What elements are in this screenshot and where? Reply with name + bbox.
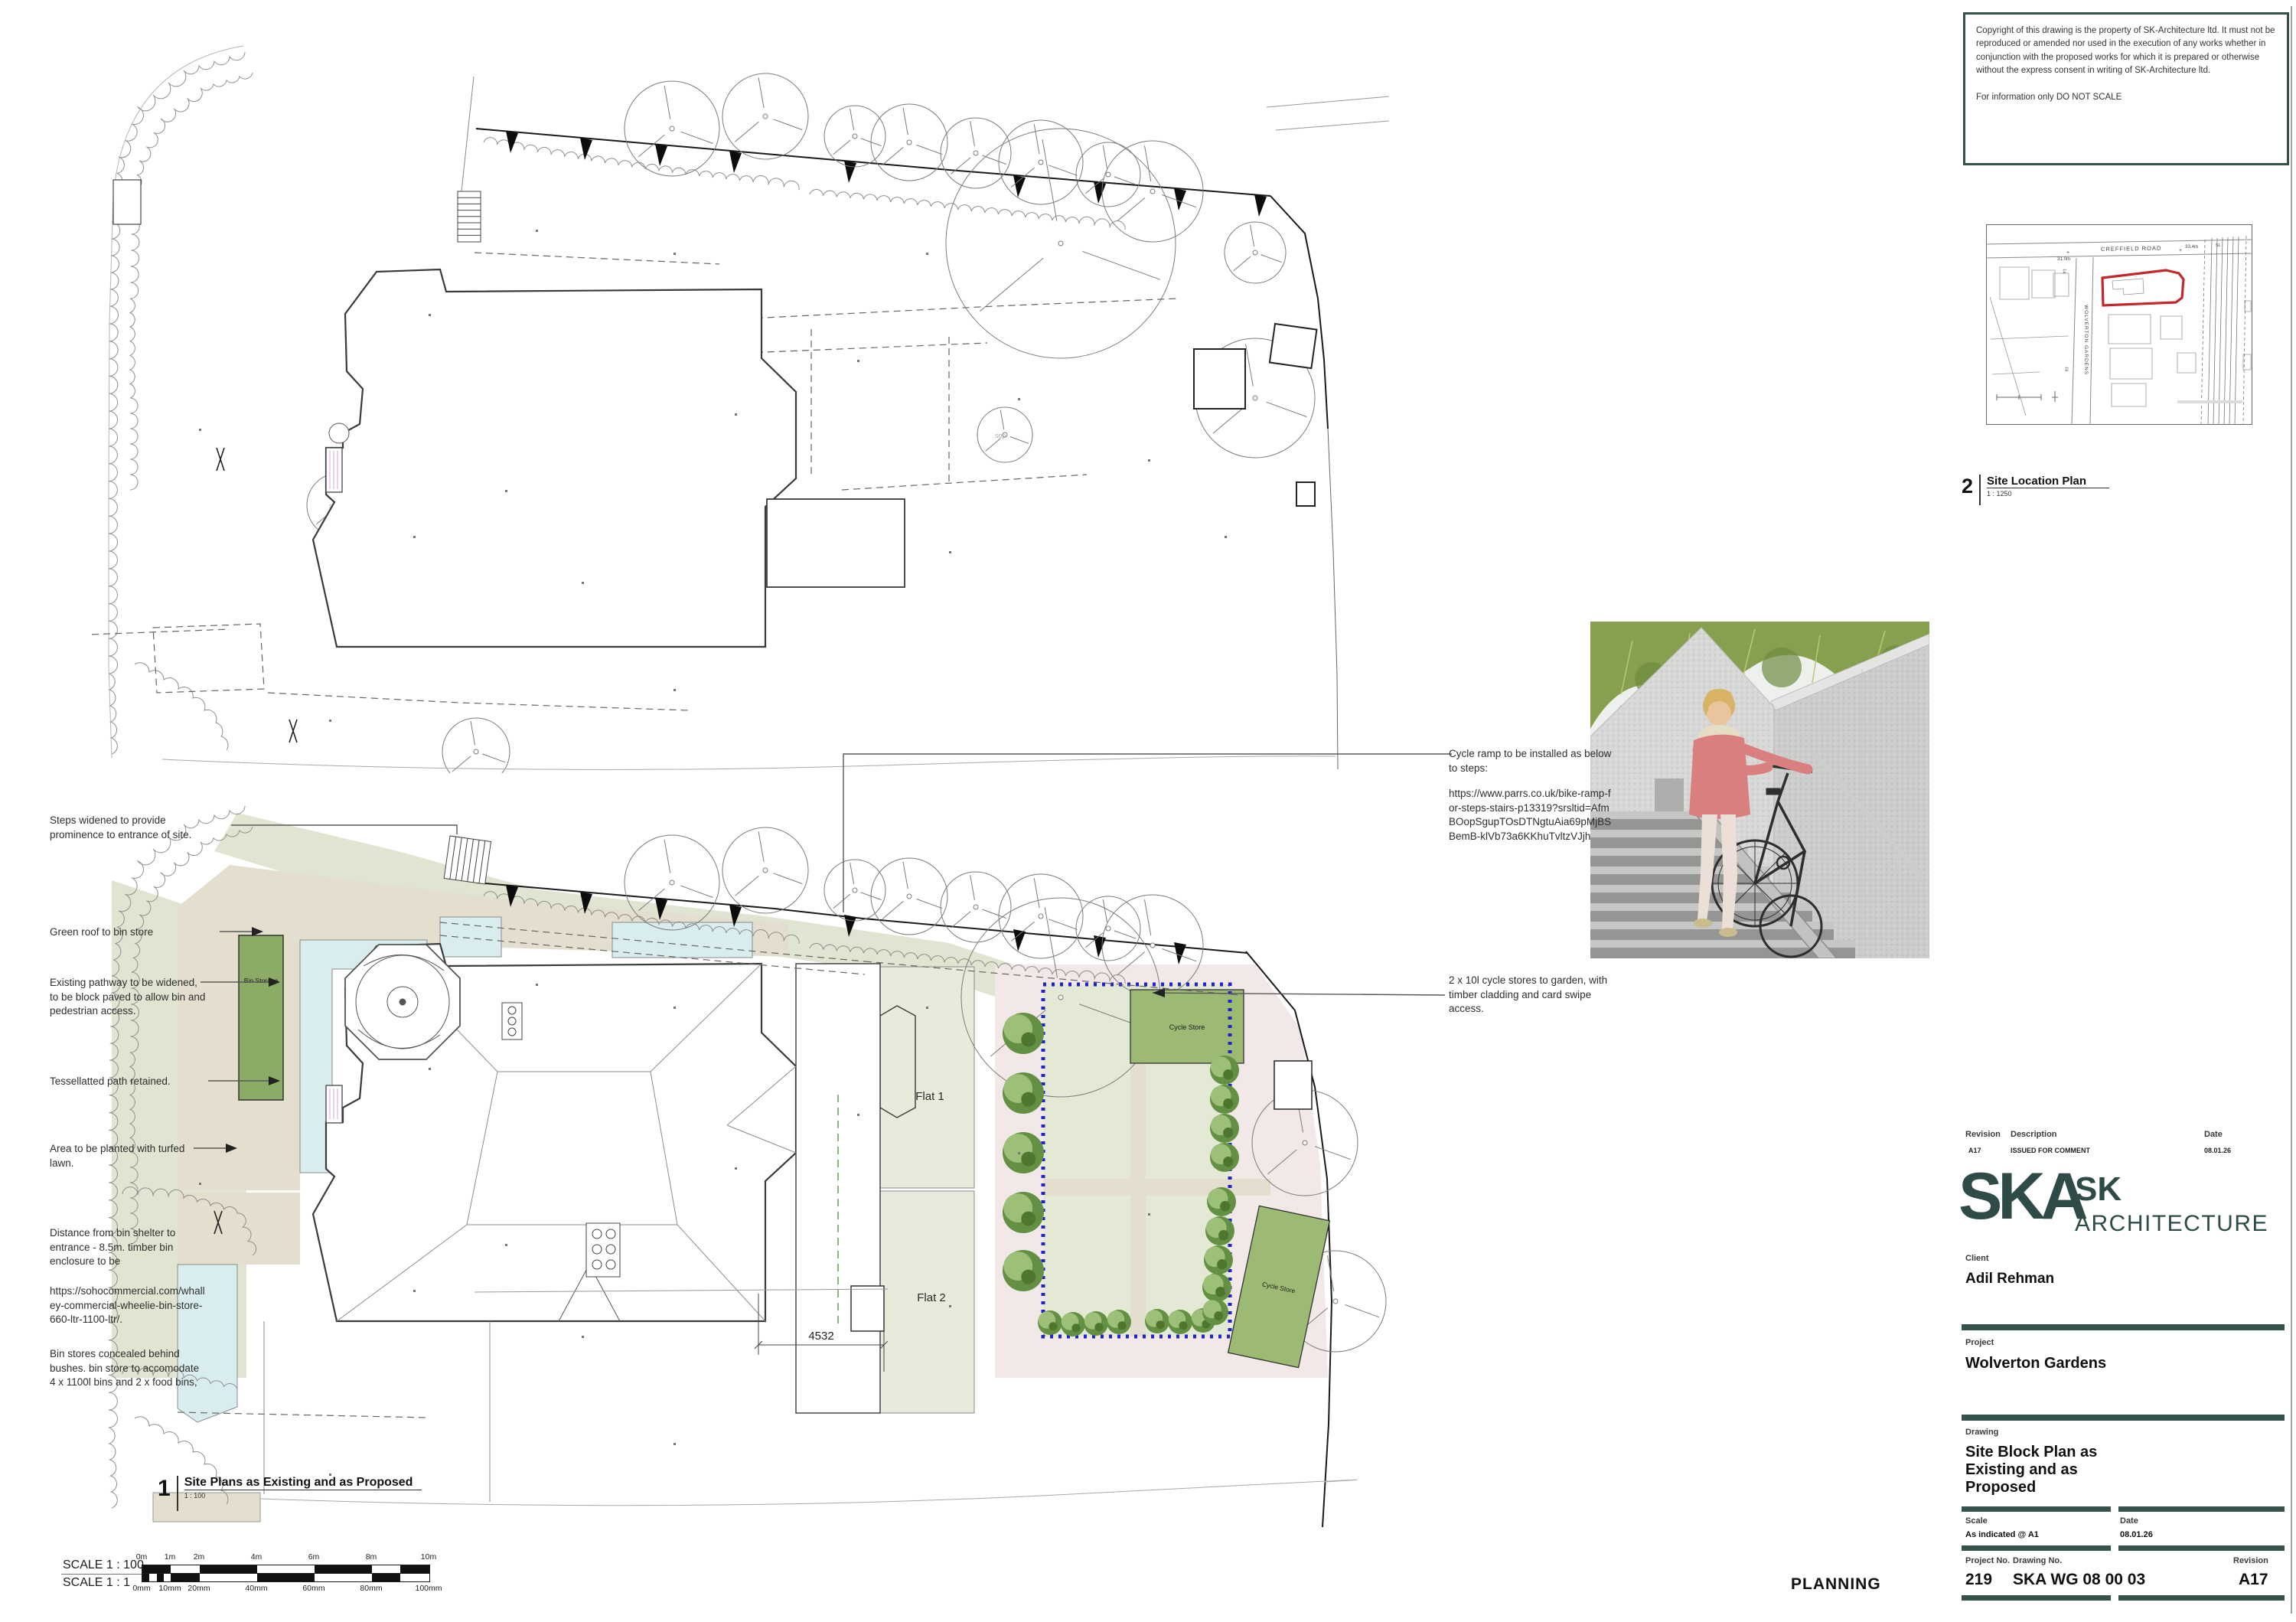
drawing-label: Drawing — [1965, 1428, 1998, 1437]
annotation-note: 2 x 10l cycle stores to garden, with tim… — [1449, 974, 1616, 1017]
annotation-note: https://www.parrs.co.uk/bike-ramp-for-st… — [1449, 787, 1616, 844]
revision-value2: A17 — [2239, 1571, 2268, 1589]
annotation-note: Green roof to bin store — [50, 925, 207, 940]
divider-split — [1962, 1545, 2285, 1551]
project-no: 219 — [1965, 1571, 1992, 1589]
bin-storage-label: Bin Storage — [244, 977, 279, 984]
tree-icon — [999, 120, 1083, 204]
tree-icon — [999, 874, 1083, 958]
caption-number: 1 — [158, 1476, 171, 1502]
boundary-line — [109, 46, 243, 758]
skylight — [586, 1223, 620, 1277]
fence-flag-icon — [506, 131, 518, 153]
drawing-row: Drawing Site Block Plan as Existing and … — [1962, 1421, 2285, 1506]
level-right: 33.4m — [2185, 244, 2198, 250]
scalebar-divider — [61, 1574, 142, 1575]
tick-label: 100mm — [415, 1584, 442, 1593]
fence-flag-icon — [1013, 175, 1026, 197]
date-label: Date — [2120, 1516, 2138, 1526]
client-label: Client — [1965, 1254, 1989, 1263]
flat2-label: Flat 2 — [917, 1291, 946, 1304]
bush-icon — [1145, 1309, 1169, 1333]
scale-label: Scale — [1965, 1516, 1988, 1526]
description-value: ISSUED FOR COMMENT — [2011, 1147, 2090, 1154]
bush-icon — [1107, 1310, 1131, 1334]
bush-icon — [1207, 1187, 1236, 1216]
tree-icon — [824, 106, 885, 167]
fence-flag-icon — [844, 161, 856, 183]
garden-path — [1130, 1063, 1146, 1336]
svg-text:+: + — [2179, 248, 2182, 253]
tick-label: 60mm — [302, 1584, 325, 1593]
tree-icon — [941, 872, 1011, 942]
logo-row: SKA SK ARCHITECTURE — [1962, 1170, 2285, 1254]
map-copyright-smudge — [2177, 400, 2242, 403]
bush-icon — [1084, 1311, 1108, 1336]
scale-value: As indicated @ A1 — [1965, 1530, 2039, 1539]
annotation-note: Steps widened to provide prominence to e… — [50, 814, 207, 842]
scale-date-row: Scale As indicated @ A1 Date 08.01.26 — [1962, 1512, 2285, 1545]
caption-title: Site Plans as Existing and as Proposed — [184, 1476, 422, 1490]
tick-label: 6m — [308, 1552, 320, 1562]
road-label: CREFFIELD ROAD — [2101, 245, 2162, 253]
scalebar-ticks-mm: 0mm 10mm 20mm 40mm 60mm 80mm 100mm — [142, 1584, 432, 1594]
annotation-note: Tessellatted path retained. — [50, 1075, 207, 1089]
tree-icon — [1076, 896, 1140, 961]
site-location-map: CREFFIELD ROAD WOLVERTON GARDENS 31.0m 3… — [1986, 224, 2252, 425]
bush-icon — [1003, 1013, 1044, 1054]
bay-window — [326, 1085, 342, 1123]
flat1-label: Flat 1 — [915, 1090, 944, 1103]
tree-icon — [722, 827, 808, 913]
copyright-text: Copyright of this drawing is the propert… — [1976, 24, 2276, 77]
annotation-note: Existing pathway to be widened, to be bl… — [50, 976, 207, 1019]
bush-icon — [1003, 1072, 1044, 1114]
bush-icon — [1003, 1250, 1044, 1291]
divider-split — [1962, 1506, 2285, 1512]
tick-label: 8m — [366, 1552, 377, 1562]
project-name: Wolverton Gardens — [1965, 1355, 2106, 1372]
number-row: Project No. Drawing No. Revision 219 SKA… — [1962, 1551, 2285, 1595]
cycle-store-label: Cycle Store — [1169, 1023, 1205, 1031]
brand-architecture: ARCHITECTURE — [2075, 1212, 2268, 1235]
bush-icon — [1038, 1310, 1062, 1335]
house-19: 19 — [2063, 367, 2069, 372]
sheet-edge-line — [2291, 6, 2292, 1614]
bush-icon — [1202, 1273, 1231, 1302]
bush-icon — [1204, 1245, 1233, 1274]
scalebar-label-100: SCALE 1 : 100 — [63, 1558, 144, 1572]
bush-icon — [1210, 1056, 1239, 1085]
tick-label: 20mm — [188, 1584, 210, 1593]
drawing-no: SKA WG 08 00 03 — [2013, 1571, 2145, 1589]
scalebar-ticks-m: 0m 1m 2m 4m 6m 8m 10m — [142, 1552, 432, 1563]
divider-split — [1962, 1595, 2285, 1601]
divider-bar — [1962, 1324, 2285, 1330]
road-edge — [1267, 96, 1389, 130]
tree-icon — [941, 118, 1011, 188]
annotation-note: Distance from bin shelter to entrance - … — [50, 1226, 207, 1269]
drawing-sheet: Copyright of this drawing is the propert… — [0, 0, 2296, 1622]
revision-value: A17 — [1968, 1147, 1981, 1154]
tick-label: 0mm — [132, 1584, 150, 1593]
boundary-posts — [264, 1321, 490, 1502]
gate-mark — [217, 448, 297, 742]
fence-flag-icon — [580, 138, 592, 160]
tree-icon — [442, 718, 510, 773]
caption-scale: 1 : 1250 — [1987, 490, 2109, 498]
tick-label: 10mm — [158, 1584, 181, 1593]
bay-roof — [329, 423, 349, 443]
caption-number: 2 — [1962, 475, 1973, 498]
site-location-caption: 2 Site Location Plan 1 : 1250 — [1962, 475, 2109, 505]
skylight — [502, 1003, 522, 1039]
level-left: 31.0m — [2057, 256, 2070, 262]
existing-site-plan: sopsop — [92, 38, 1393, 773]
cycle-ramp-reference-photo — [1590, 622, 1929, 958]
divider-bar — [1962, 1415, 2285, 1421]
scalebar-label-1: SCALE 1 : 1 — [63, 1576, 130, 1590]
revision-label: Revision — [2233, 1556, 2268, 1565]
bush-icon — [1061, 1312, 1085, 1336]
date-value2: 08.01.26 — [2120, 1530, 2153, 1539]
copyright-box: Copyright of this drawing is the propert… — [1963, 12, 2289, 165]
map-border — [1987, 225, 2252, 425]
brand-sk: SK — [2075, 1173, 2122, 1206]
fence-flag-icon — [655, 144, 667, 166]
tick-label: 1m — [165, 1552, 176, 1562]
bush-icon — [1210, 1114, 1239, 1143]
annotation-note: https://sohocommercial.com/whalley-comme… — [50, 1284, 207, 1327]
house-14: 14 — [2061, 269, 2066, 274]
bush-icon — [1210, 1143, 1239, 1172]
tick-label: 0m — [136, 1552, 148, 1562]
stairs — [444, 836, 491, 884]
tree-icon — [1102, 141, 1203, 242]
boundary-line — [1328, 429, 1338, 769]
tick-label: 40mm — [245, 1584, 267, 1593]
tick-label: 80mm — [360, 1584, 382, 1593]
drawing-title: Site Block Plan as Existing and as Propo… — [1965, 1444, 2103, 1496]
fence-flag-icon — [1174, 942, 1186, 964]
fence-flag-icon — [1254, 194, 1267, 217]
fence-flag-icon — [1013, 929, 1026, 951]
tick-label: 10m — [421, 1552, 436, 1562]
date-header: Date — [2204, 1130, 2223, 1139]
ska-logo: SKA — [1958, 1163, 2084, 1229]
dimension-label: 4532 — [808, 1330, 833, 1343]
annotation-note: Cycle ramp to be installed as below to s… — [1449, 747, 1616, 775]
proposed-site-plan: Flat 1Flat 2Bin StorageCycle StoreCycle … — [92, 796, 1393, 1531]
title-block: Revision Description Date A17 ISSUED FOR… — [1962, 1130, 2285, 1601]
tree-icon — [1225, 222, 1286, 283]
caption-title: Site Location Plan — [1987, 475, 2109, 488]
tree-icon — [824, 860, 885, 921]
scalebar-1 — [142, 1573, 430, 1582]
tick-label: 2m — [194, 1552, 205, 1562]
fence-flag-icon — [729, 151, 742, 173]
bush-icon — [1202, 1299, 1228, 1325]
annotation-note: Bin stores concealed behind bushes. bin … — [50, 1347, 207, 1390]
date-value: 08.01.26 — [2204, 1147, 2231, 1154]
garden-path — [1043, 1179, 1270, 1196]
bottom-boundary — [162, 756, 1336, 770]
street-label: WOLVERTON GARDENS — [2083, 305, 2089, 375]
bottom-boundary — [260, 1480, 1357, 1505]
caption-scale: 1 : 100 — [184, 1492, 422, 1500]
annotation-note: Area to be planted with turfed lawn. — [50, 1142, 207, 1170]
bin-storage — [239, 935, 283, 1100]
revision-header: Revision — [1965, 1130, 2001, 1139]
client-row: Client Adil Rehman — [1962, 1254, 2285, 1324]
fence-flag-icon — [1174, 188, 1186, 211]
sop-label: sop — [995, 432, 1006, 439]
bay-window — [326, 448, 342, 492]
bush-icon — [1003, 1192, 1044, 1233]
bush-icon — [1168, 1310, 1192, 1334]
outbuilding — [1274, 1061, 1312, 1109]
sl-label: SL — [2216, 243, 2221, 248]
project-no-label: Project No. — [1965, 1556, 2010, 1565]
tree-icon — [625, 81, 719, 176]
bush-icon — [1003, 1132, 1044, 1173]
project-row: Project Wolverton Gardens — [1962, 1330, 2285, 1415]
neighbour-building — [767, 499, 905, 587]
tree-icon — [722, 73, 808, 159]
svg-text:+: + — [2066, 250, 2069, 256]
project-label: Project — [1965, 1338, 1994, 1347]
drawing-no-label: Drawing No. — [2013, 1556, 2062, 1565]
tree-icon — [946, 129, 1176, 358]
flat-gardens — [880, 967, 974, 1413]
stairs — [458, 77, 481, 242]
building-footprint — [313, 269, 796, 647]
tick-label: 4m — [251, 1552, 263, 1562]
bush-icon — [1205, 1216, 1234, 1245]
do-not-scale-text: For information only DO NOT SCALE — [1976, 91, 2276, 104]
bush-icon — [1210, 1085, 1239, 1114]
bay-roof — [345, 945, 460, 1059]
client-name: Adil Rehman — [1965, 1271, 2054, 1287]
planning-stamp: PLANNING — [1791, 1575, 1881, 1594]
main-plan-caption: 1 Site Plans as Existing and as Proposed… — [158, 1476, 422, 1511]
description-header: Description — [2011, 1130, 2057, 1139]
